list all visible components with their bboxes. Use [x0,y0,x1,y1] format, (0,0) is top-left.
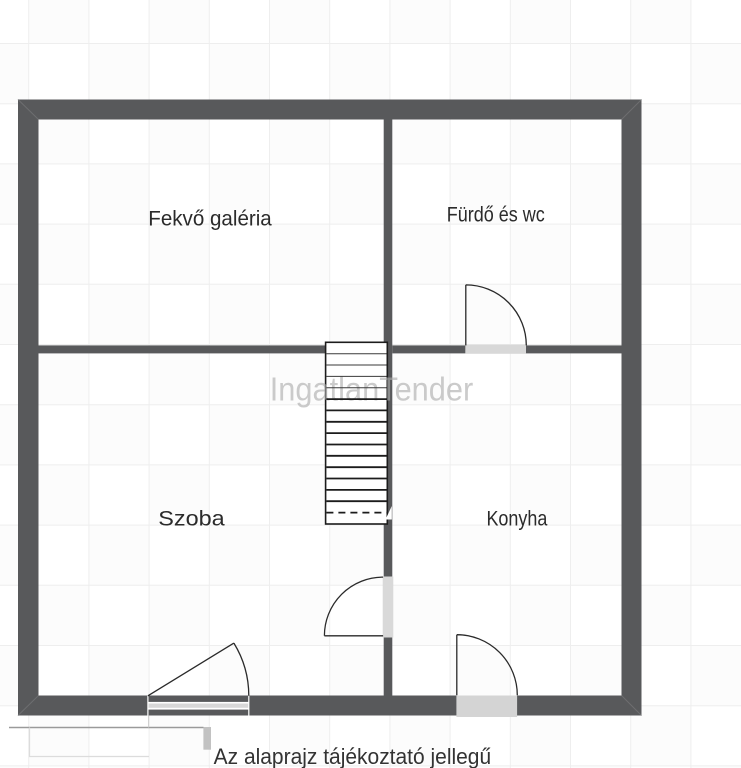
svg-text:IngatlanTender: IngatlanTender [270,371,474,408]
svg-text:Szoba: Szoba [158,506,224,530]
svg-text:Az alaprajz tájékoztató jelleg: Az alaprajz tájékoztató jellegű [214,744,492,768]
svg-text:Fekvő galéria: Fekvő galéria [148,207,272,230]
svg-text:Fürdő és wc: Fürdő és wc [447,203,545,226]
svg-text:Konyha: Konyha [486,507,547,530]
